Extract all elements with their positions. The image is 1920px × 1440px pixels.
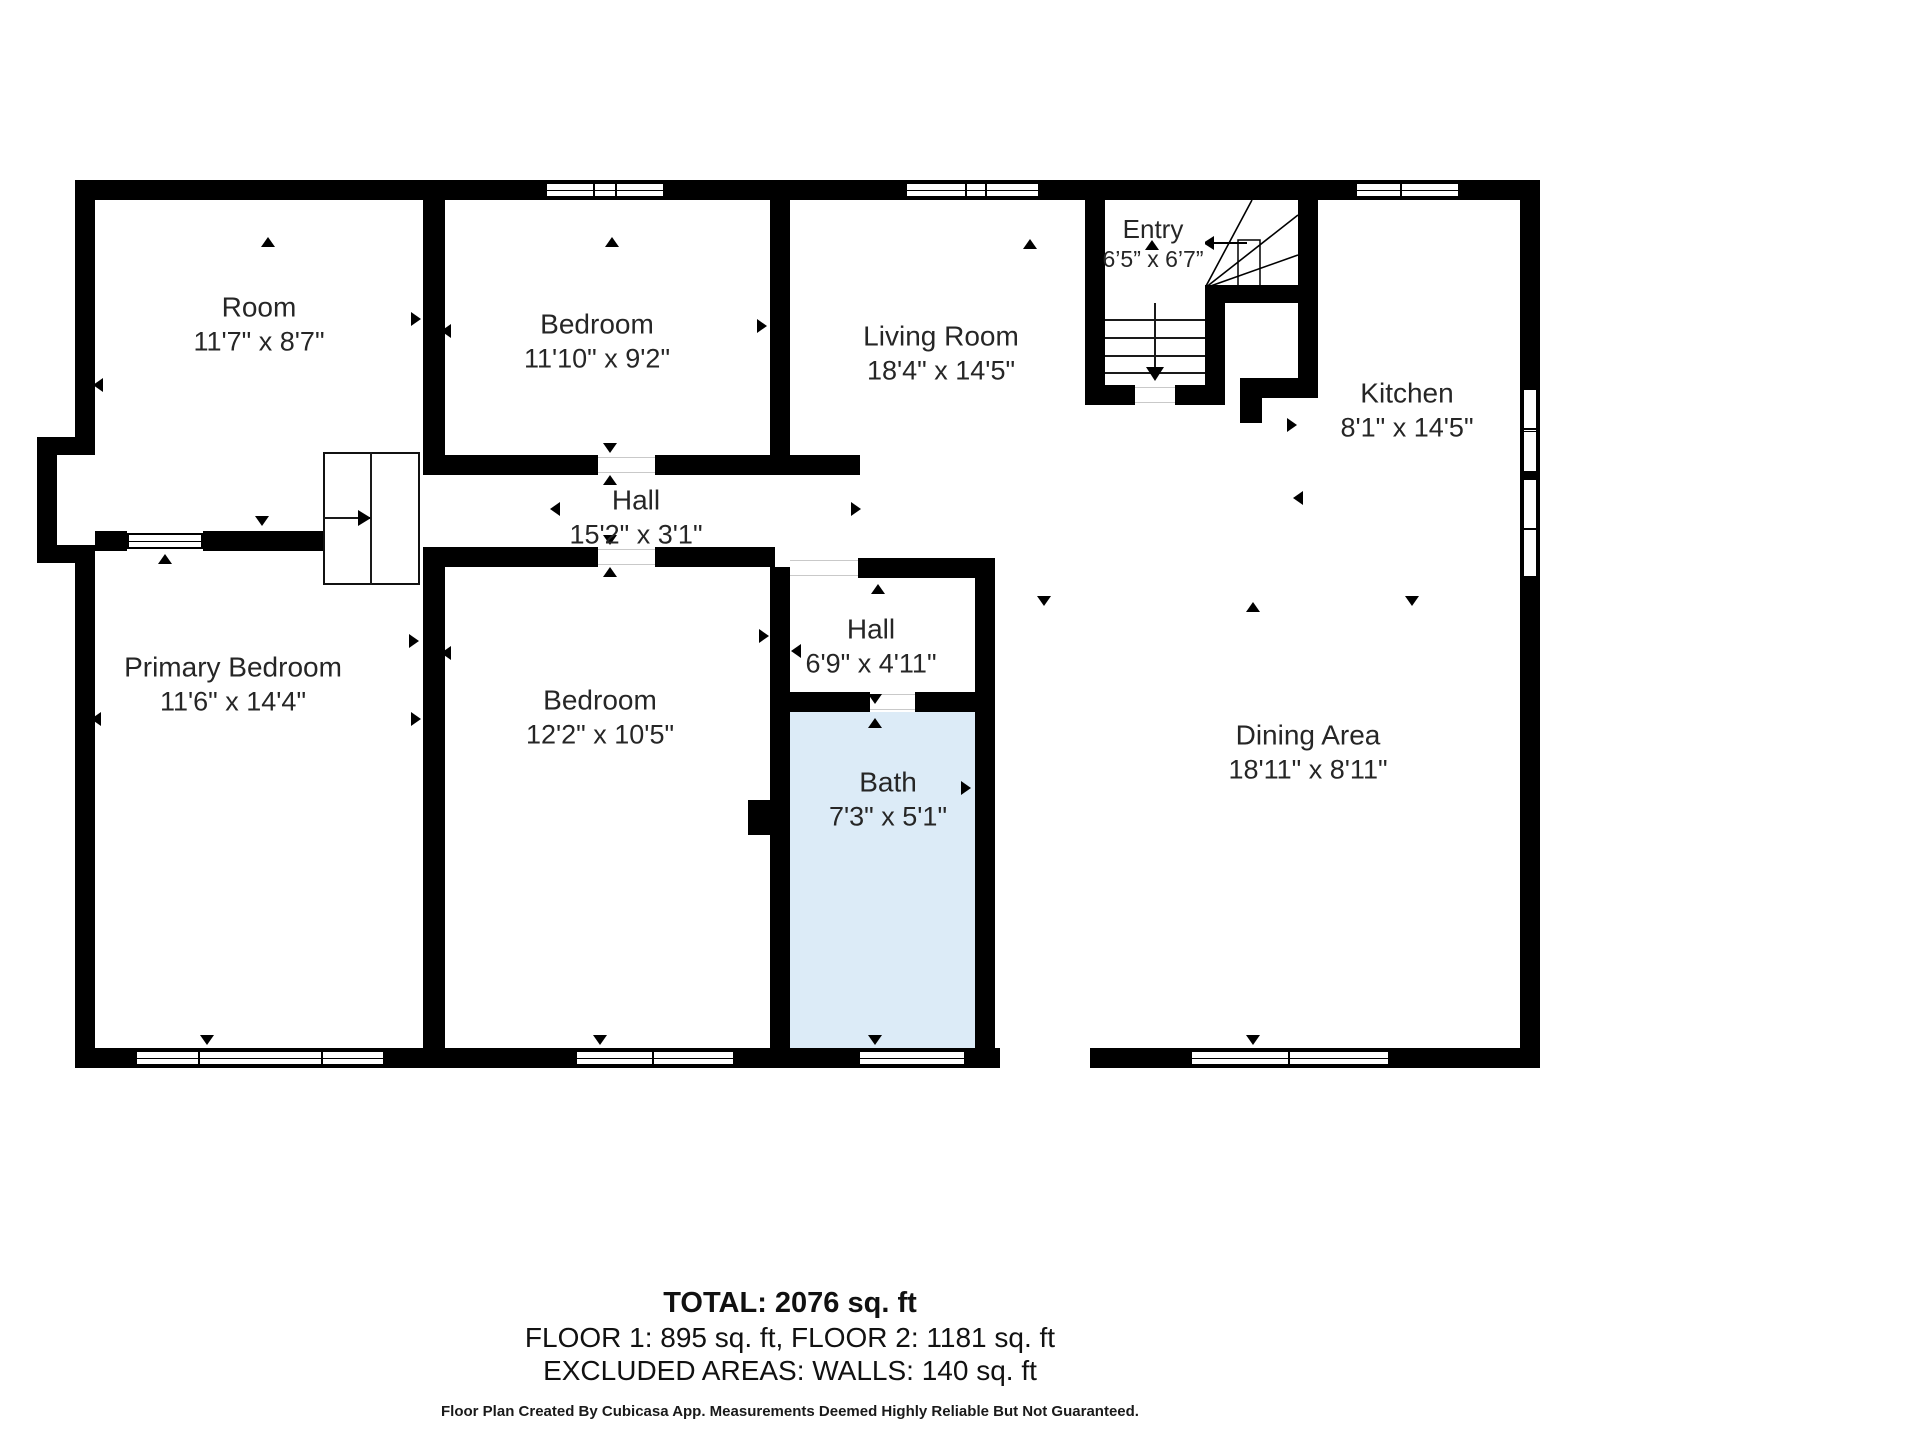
- room-name: Kitchen: [1340, 376, 1473, 411]
- room-dimensions: 18'4" x 14'5": [863, 354, 1019, 388]
- door-marker-icon: [255, 516, 269, 526]
- window-symbol: [1190, 1050, 1390, 1066]
- wall-segment: [95, 531, 127, 551]
- room-name: Hall: [569, 483, 702, 518]
- room-dimensions: 8'1" x 14'5": [1340, 411, 1473, 445]
- wall-segment: [748, 800, 770, 835]
- bath-floor: [790, 712, 975, 1048]
- disclaimer: Floor Plan Created By Cubicasa App. Meas…: [385, 1403, 1195, 1420]
- door-marker-icon: [1246, 602, 1260, 612]
- room-name: Bedroom: [524, 307, 670, 342]
- door-marker-icon: [91, 712, 101, 726]
- room-label-dining-area: Dining Area18'11" x 8'11": [1228, 718, 1387, 787]
- room-dimensions: 11'6" x 14'4": [124, 685, 342, 719]
- window-symbol: [575, 1050, 735, 1066]
- wall-segment: [75, 180, 1540, 200]
- door-marker-icon: [550, 502, 560, 516]
- wall-segment: [770, 200, 790, 460]
- wall-segment: [1085, 385, 1135, 405]
- room-label-bath: Bath7'3" x 5'1": [829, 765, 947, 834]
- wall-segment: [75, 545, 95, 1068]
- door-marker-icon: [1405, 596, 1419, 606]
- room-label-entry: Entry6’5” x 6’7”: [1103, 214, 1204, 274]
- door-marker-icon: [603, 567, 617, 577]
- window-symbol: [1522, 478, 1538, 578]
- room-name: Hall: [805, 612, 936, 647]
- room-label-living-room: Living Room18'4" x 14'5": [863, 319, 1019, 388]
- door-marker-icon: [593, 1035, 607, 1045]
- room-label-bedroom-top: Bedroom11'10" x 9'2": [524, 307, 670, 376]
- window-symbol: [905, 182, 1040, 198]
- door-marker-icon: [851, 502, 861, 516]
- room-label-hall-main: Hall15'2" x 3'1": [569, 483, 702, 552]
- door-marker-icon: [871, 584, 885, 594]
- door-marker-icon: [1089, 237, 1099, 251]
- window-symbol: [545, 182, 665, 198]
- room-name: Dining Area: [1228, 718, 1387, 753]
- room-name: Entry: [1103, 214, 1204, 245]
- door-marker-icon: [1037, 596, 1051, 606]
- room-dimensions: 12'2" x 10'5": [526, 718, 674, 752]
- stair-down-arrow-icon: [1146, 367, 1164, 381]
- wall-segment: [790, 692, 870, 712]
- door-marker-icon: [93, 378, 103, 392]
- wall-segment: [75, 180, 95, 455]
- door-marker-icon: [791, 644, 801, 658]
- door-opening: [1135, 387, 1175, 403]
- room-name: Primary Bedroom: [124, 650, 342, 685]
- wall-segment: [1175, 385, 1225, 405]
- room-name: Bath: [829, 765, 947, 800]
- door-marker-icon: [868, 694, 882, 704]
- floorplan: Room11'7" x 8'7"Bedroom11'10" x 9'2"Livi…: [0, 0, 1920, 1440]
- door-marker-icon: [757, 319, 767, 333]
- door-marker-icon: [411, 312, 421, 326]
- room-dimensions: 11'10" x 9'2": [524, 342, 670, 376]
- stair-arrow-icon: [358, 510, 371, 526]
- total-area: TOTAL: 2076 sq. ft: [385, 1288, 1195, 1319]
- door-marker-icon: [961, 781, 971, 795]
- room-dimensions: 11'7" x 8'7": [193, 325, 324, 359]
- room-name: Living Room: [863, 319, 1019, 354]
- floor-areas: FLOOR 1: 895 sq. ft, FLOOR 2: 1181 sq. f…: [385, 1324, 1195, 1352]
- wall-segment: [1240, 378, 1318, 398]
- door-marker-icon: [603, 443, 617, 453]
- room-label-kitchen: Kitchen8'1" x 14'5": [1340, 376, 1473, 445]
- room-dimensions: 7'3" x 5'1": [829, 800, 947, 834]
- door-marker-icon: [261, 237, 275, 247]
- window-symbol: [135, 1050, 385, 1066]
- room-dimensions: 6'9" x 4'11": [805, 647, 936, 681]
- door-marker-icon: [759, 629, 769, 643]
- room-label-room: Room11'7" x 8'7": [193, 290, 324, 359]
- window-symbol: [127, 533, 203, 549]
- room-label-primary-bedroom: Primary Bedroom11'6" x 14'4": [124, 650, 342, 719]
- door-marker-icon: [1023, 239, 1037, 249]
- door-opening: [598, 457, 655, 473]
- room-name: Bedroom: [526, 683, 674, 718]
- wall-segment: [423, 455, 598, 475]
- floorplan-canvas: Room11'7" x 8'7"Bedroom11'10" x 9'2"Livi…: [0, 0, 1920, 1440]
- wall-segment: [770, 567, 790, 1048]
- door-marker-icon: [868, 1035, 882, 1045]
- door-opening: [790, 560, 858, 576]
- door-marker-icon: [868, 718, 882, 728]
- footer-summary: TOTAL: 2076 sq. ft FLOOR 1: 895 sq. ft, …: [385, 1288, 1195, 1420]
- door-marker-icon: [158, 554, 172, 564]
- door-marker-icon: [200, 1035, 214, 1045]
- door-marker-icon: [1287, 418, 1297, 432]
- excluded-areas: EXCLUDED AREAS: WALLS: 140 sq. ft: [385, 1357, 1195, 1385]
- wall-segment: [975, 558, 995, 1048]
- door-marker-icon: [1246, 1035, 1260, 1045]
- window-symbol: [858, 1050, 966, 1066]
- door-marker-icon: [1293, 491, 1303, 505]
- door-marker-icon: [770, 781, 780, 795]
- room-dimensions: 15'2" x 3'1": [569, 518, 702, 552]
- winder-stairs: [1205, 200, 1318, 303]
- door-marker-icon: [411, 712, 421, 726]
- room-dimensions: 6’5” x 6’7”: [1103, 245, 1204, 274]
- door-marker-icon: [605, 237, 619, 247]
- door-marker-icon: [441, 324, 451, 338]
- door-marker-icon: [1522, 994, 1532, 1008]
- wall-segment: [915, 692, 975, 712]
- window-symbol: [1355, 182, 1460, 198]
- room-name: Room: [193, 290, 324, 325]
- window-symbol: [1522, 388, 1538, 473]
- stair-direction-line: [1154, 303, 1156, 367]
- door-marker-icon: [409, 634, 419, 648]
- wall-segment: [655, 455, 860, 475]
- room-dimensions: 18'11" x 8'11": [1228, 753, 1387, 787]
- wall-segment: [203, 531, 323, 551]
- wall-segment: [1240, 398, 1262, 423]
- room-label-bedroom-bottom: Bedroom12'2" x 10'5": [526, 683, 674, 752]
- room-label-hall-small: Hall6'9" x 4'11": [805, 612, 936, 681]
- wall-segment: [1520, 180, 1540, 1068]
- door-marker-icon: [441, 646, 451, 660]
- wall-segment: [423, 567, 445, 1048]
